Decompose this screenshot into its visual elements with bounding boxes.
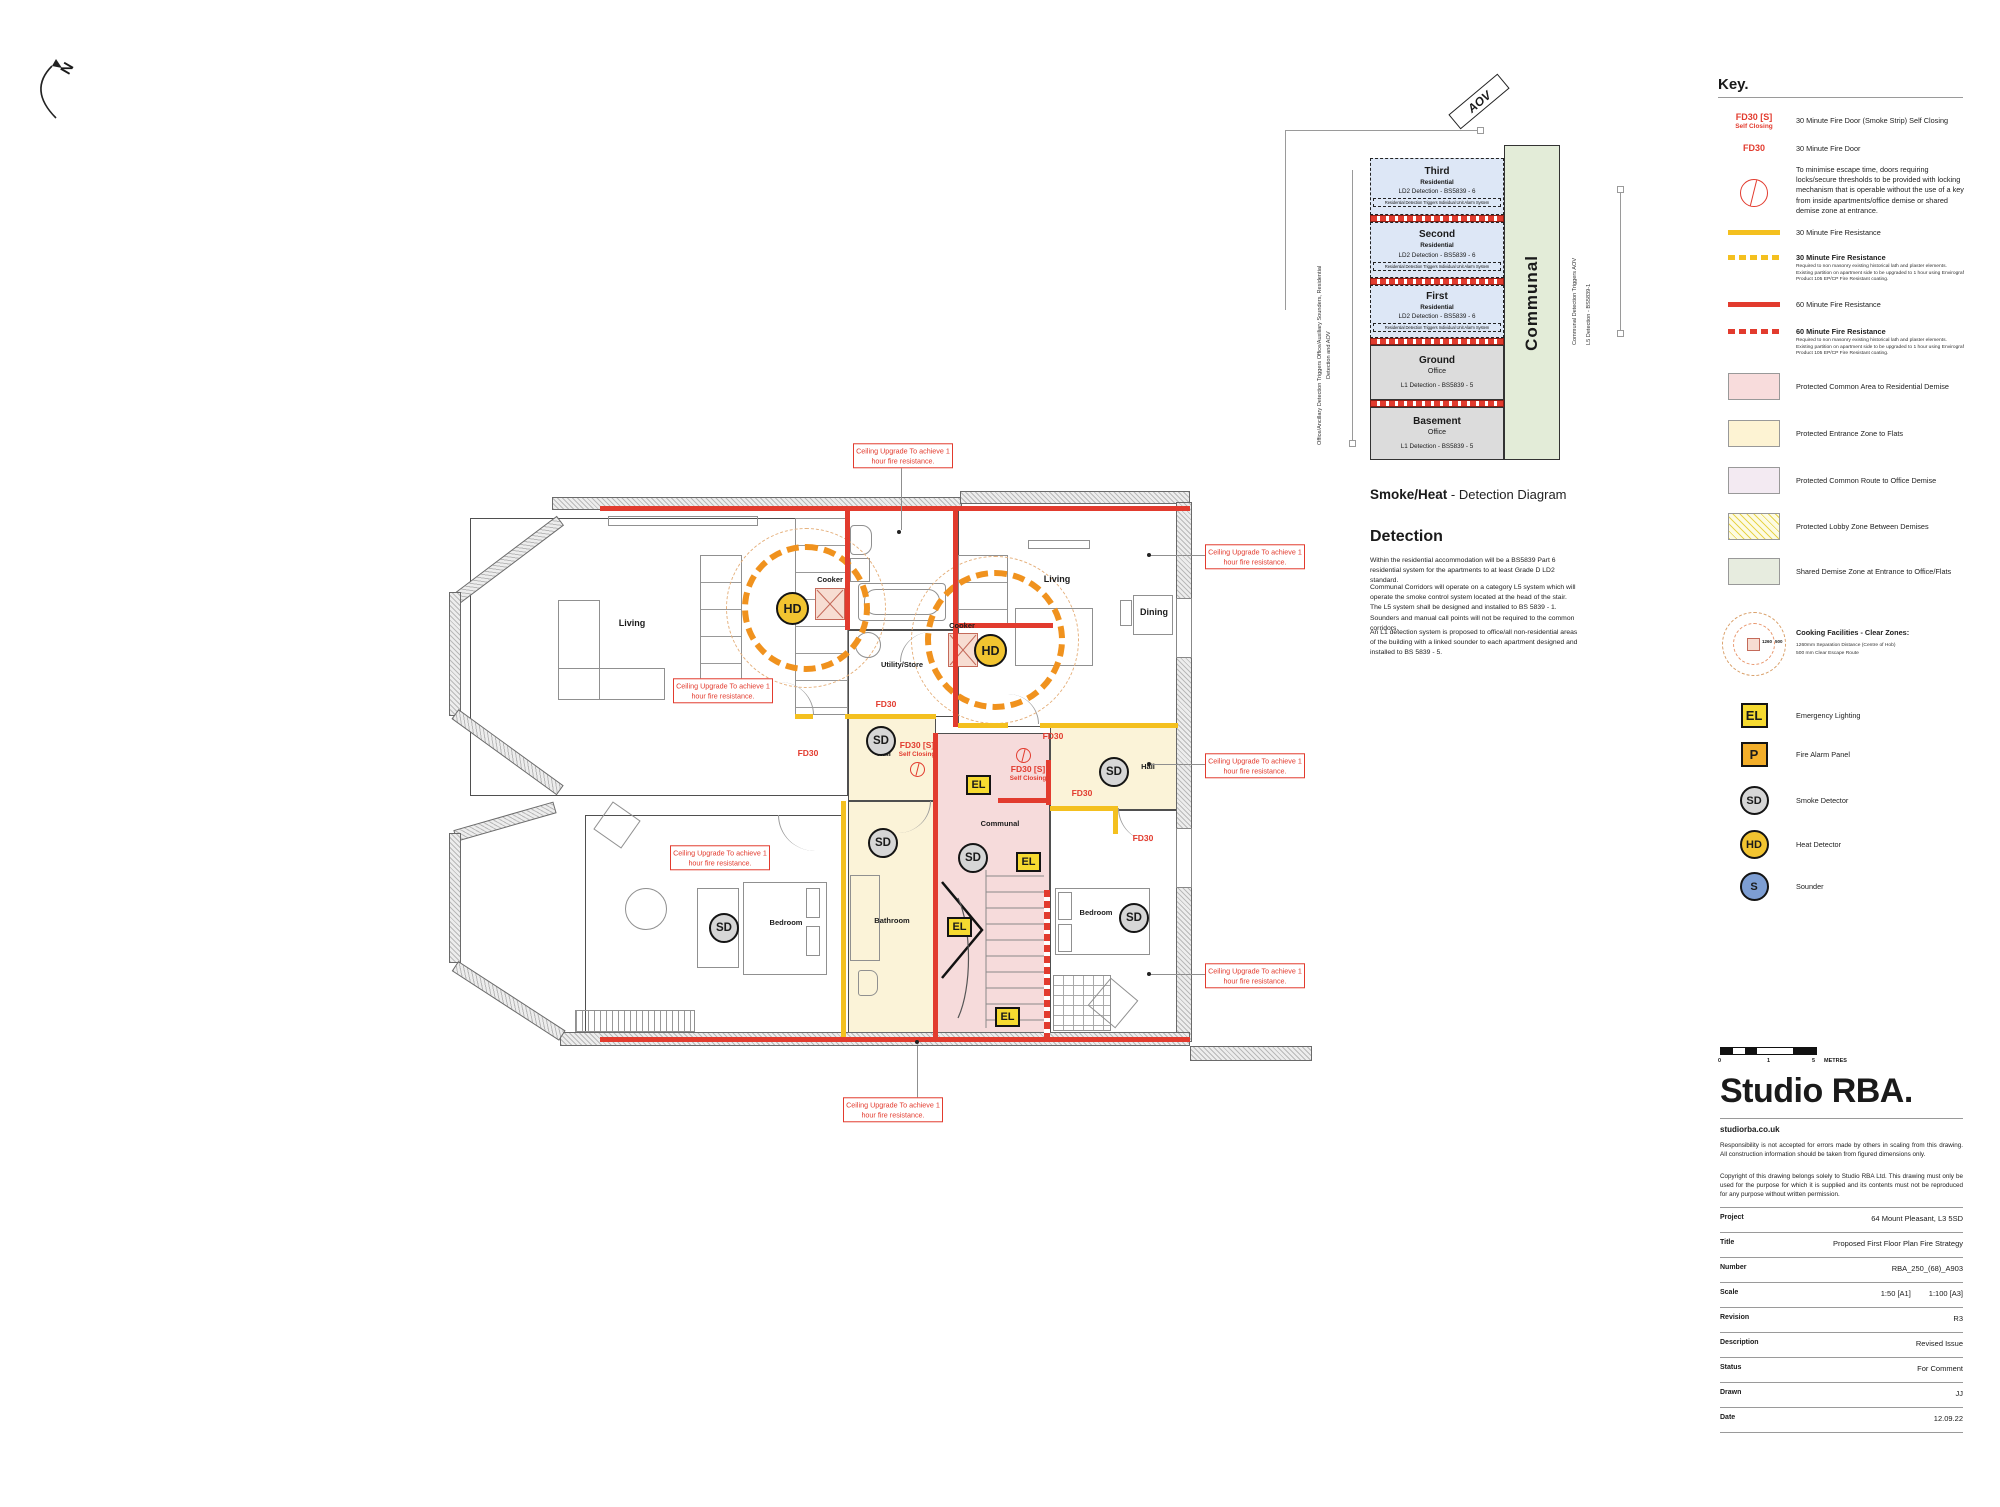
swatch-pink [1728,373,1780,400]
lock-release-icon [1740,179,1768,207]
key-rule [1718,97,1963,98]
heat-detector-icon: HD [1740,830,1769,859]
leader-line [1150,555,1207,556]
website: studiorba.co.uk [1720,1125,1780,1134]
wall-bay-segment [453,802,556,842]
diagram-right-note-2: L5 Detection - BS5839-1 [1586,195,1598,345]
leader-line [1150,764,1207,765]
fire-line-60 [600,1037,1190,1042]
ceiling-note: Ceiling Upgrade To achieve 1 hour fire r… [853,443,953,468]
fd30-label: FD30 [876,699,897,709]
divider [1720,1432,1963,1433]
wall-segment [960,491,1190,504]
wall-segment [1190,1046,1312,1061]
diagram-right-note-1: Communal Detection Triggers AOV [1572,195,1584,345]
ceiling-note: Ceiling Upgrade To achieve 1 hour fire r… [1205,753,1305,778]
window [1176,828,1192,888]
lock-release-icon [910,762,925,777]
fire-line-60 [600,506,1190,511]
ceiling-note: Ceiling Upgrade To achieve 1 hour fire r… [673,678,773,703]
smoke-detector: SD [866,726,896,756]
copyright: Copyright of this drawing belongs solely… [1720,1172,1963,1199]
detection-paragraph: An L1 detection system is proposed to of… [1370,628,1578,659]
floor-first: First Residential LD2 Detection - BS5839… [1370,285,1504,338]
label-living-left: Living [619,618,646,628]
diagram-connector [1352,170,1353,440]
leader-dot [915,1040,919,1044]
line-30min [1728,230,1780,235]
room-hall-left [848,717,936,801]
fire-line-60 [1046,760,1051,805]
radiator [608,516,758,526]
diagram-connector [1285,130,1286,310]
titleblock-row: Scale 1:50 [A1]1:100 [A3] [1720,1282,1963,1308]
floor-basement: Basement Office L1 Detection - BS5839 - … [1370,407,1504,460]
titleblock-row: Status For Comment [1720,1357,1963,1383]
smoke-detector: SD [1099,757,1129,787]
leader-dot [1147,972,1151,976]
titleblock-row: Project 64 Mount Pleasant, L3 5SD [1720,1207,1963,1233]
line-30min-dashed [1728,255,1780,260]
fd30-label: FD30 [1043,731,1064,741]
smoke-detector: SD [958,843,988,873]
fd30-label: FD30 [798,748,819,758]
label-cooker-right: Cooker [949,621,975,630]
diagram-connector [1620,190,1621,330]
self-closing-label: Self Closing [1010,775,1046,782]
emergency-light-icon: EL [1741,703,1768,728]
aov-label: AOV [1448,74,1509,130]
floor-ground: Ground Office L1 Detection - BS5839 - 5 [1370,345,1504,400]
fire-line-30 [1050,806,1118,811]
lock-release-icon [1016,748,1031,763]
wall-bay-segment [449,592,461,716]
floor-second: Second Residential LD2 Detection - BS583… [1370,222,1504,278]
swatch-hatch [1728,513,1780,540]
label-bedroom-right: Bedroom [1080,908,1113,917]
diagram-connector-node [1617,186,1624,193]
sofa [558,668,665,700]
emergency-light: EL [966,775,991,795]
cooker-left [815,588,845,620]
label-cooker-left: Cooker [817,575,843,584]
leader-line [917,1046,918,1098]
detection-paragraph: Communal Corridors will operate on a cat… [1370,583,1578,634]
heat-detector: HD [776,592,809,625]
leader-line [901,468,902,530]
label-living-right: Living [1044,574,1071,584]
grille [575,1010,695,1032]
label-bathroom: Bathroom [874,916,909,925]
smoke-detector-icon: SD [1740,786,1769,815]
disclaimer: Responsibility is not accepted for error… [1720,1141,1963,1159]
titleblock-row: Revision R3 [1720,1307,1963,1333]
pillow [806,926,820,956]
scale-tick-5: 5 [1812,1058,1815,1064]
smoke-detector: SD [1119,903,1149,933]
ceiling-note: Ceiling Upgrade To achieve 1 hour fire r… [670,845,770,870]
wall-bay-segment [452,961,566,1041]
diagram-connector-node [1617,330,1624,337]
diagram-title: Smoke/Heat - Detection Diagram [1370,486,1567,504]
diagram-left-note: Office/Ancillary Detection Triggers Offi… [1316,255,1340,455]
brand-logo: Studio RBA. [1720,1072,1913,1111]
label-utility: Utility/Store [881,660,923,669]
fd30-label: FD30 [1072,788,1093,798]
scale-bar [1720,1047,1817,1055]
leader-dot [1147,553,1151,557]
titleblock-row: Title Proposed First Floor Plan Fire Str… [1720,1232,1963,1258]
emergency-light: EL [995,1007,1020,1027]
table-round [625,888,667,930]
scale-tick-1: 1 [1767,1058,1770,1064]
diagram-connector-node [1477,127,1484,134]
swatch-lilac [1728,467,1780,494]
label-bedroom-left: Bedroom [770,918,803,927]
swatch-green [1728,558,1780,585]
titleblock-row: Description Revised Issue [1720,1332,1963,1358]
label-communal: Communal [981,819,1020,828]
emergency-light: EL [947,917,972,937]
ceiling-note: Ceiling Upgrade To achieve 1 hour fire r… [1205,963,1305,988]
scale-tick-0: 0 [1718,1058,1721,1064]
floor-separator [1370,338,1504,345]
window [1176,598,1192,658]
ceiling-note: Ceiling Upgrade To achieve 1 hour fire r… [1205,544,1305,569]
fire-line-30 [795,714,813,719]
smoke-detector: SD [709,913,739,943]
fire-line-30 [845,714,936,719]
sounder-icon: S [1740,872,1769,901]
fire-line-60 [933,733,938,1042]
fire-line-60-dashed [1044,890,1050,1038]
titleblock-row: Date 12.09.22 [1720,1407,1963,1433]
floor-third: Third Residential LD2 Detection - BS5839… [1370,158,1504,215]
self-closing-label: Self Closing [899,751,935,758]
stairs [938,868,1048,1036]
fire-alarm-panel-icon: P [1741,742,1768,767]
divider [1720,1118,1963,1119]
fire-line-30 [958,723,1008,728]
fd30s-label: FD30 [S] [900,740,934,750]
pillow [806,888,820,918]
communal-strip: Communal [1504,145,1560,460]
pillow [1058,892,1072,920]
wall-segment [1176,502,1192,1042]
fire-line-60 [953,506,958,727]
scale-unit: METRES [1824,1058,1847,1064]
ceiling-note: Ceiling Upgrade To achieve 1 hour fire r… [843,1097,943,1122]
leader-dot [1147,762,1151,766]
fire-line-60 [998,798,1050,803]
communal-strip-label: Communal [1522,255,1542,351]
fd30-label: FD30 [1133,833,1154,843]
titleblock-row: Number RBA_250_(68)_A903 [1720,1257,1963,1283]
titleblock-row: Drawn JJ [1720,1382,1963,1408]
leader-dot [897,530,901,534]
diagram-connector-node [1349,440,1356,447]
floor-separator [1370,400,1504,407]
diagram-connector [1285,130,1481,131]
line-60min [1728,302,1780,307]
detection-heading: Detection [1370,528,1443,546]
radiator [1028,540,1090,549]
label-dining: Dining [1140,607,1168,617]
fire-line-30 [1040,723,1178,728]
emergency-light: EL [1016,852,1041,872]
line-60min-dashed [1728,329,1780,334]
fd30s-label: FD30 [S] [1011,764,1045,774]
detection-paragraph: Within the residential accommodation wil… [1370,556,1578,587]
heat-detector: HD [974,634,1007,667]
smoke-detector: SD [868,828,898,858]
toilet [858,970,878,996]
key-title: Key. [1718,76,1749,93]
cooking-zone-icon: 1260 500 [1720,610,1788,678]
fire-line-30 [841,801,846,1037]
fire-line-30 [1113,806,1118,834]
floor-separator [1370,215,1504,222]
floor-separator [1370,278,1504,285]
leader-line [1150,974,1207,975]
chair [1120,600,1132,626]
fire-line-60 [845,506,850,630]
swatch-cream [1728,420,1780,447]
drawing-sheet: N [0,0,2000,1507]
pillow [1058,924,1072,952]
wall-bay-segment [449,833,461,963]
